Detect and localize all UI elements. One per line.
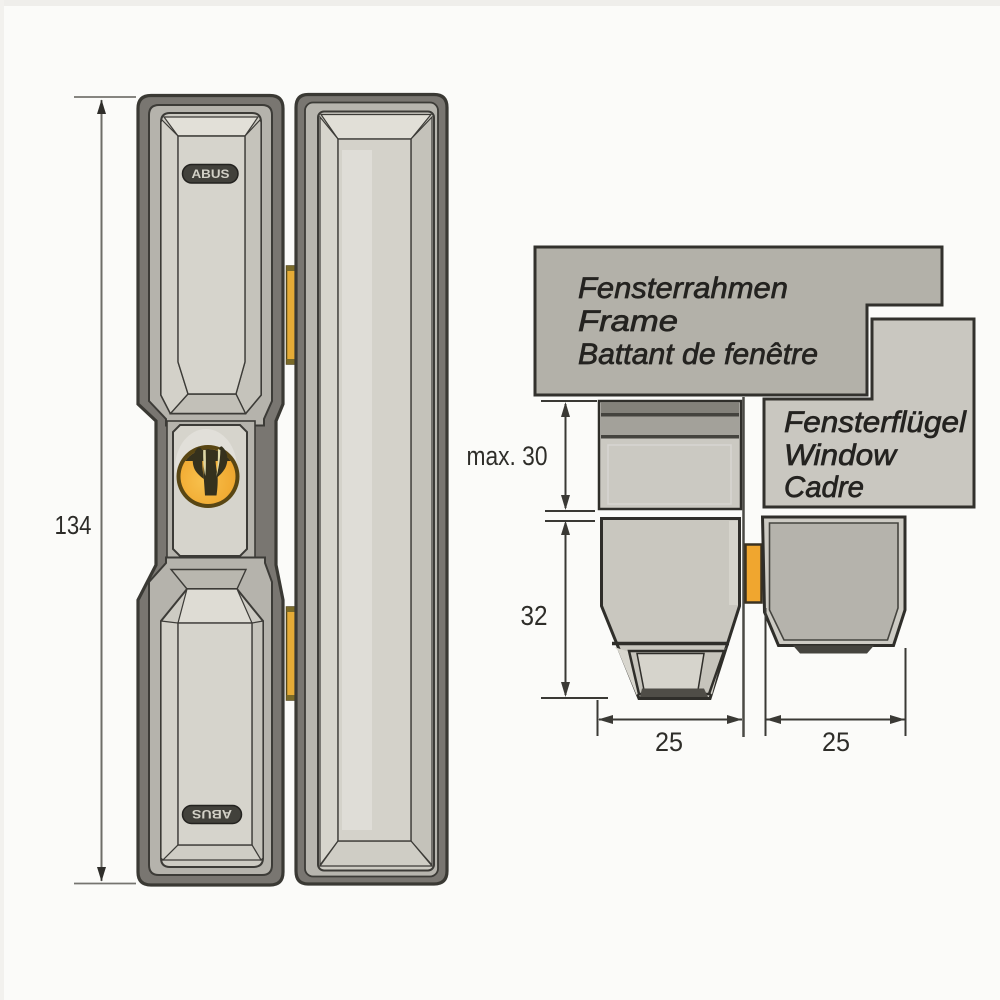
svg-text:25: 25 — [822, 727, 850, 757]
svg-text:134: 134 — [55, 510, 92, 540]
svg-text:Battant de fenêtre: Battant de fenêtre — [578, 338, 818, 371]
svg-text:Frame: Frame — [578, 305, 678, 338]
svg-text:Cadre: Cadre — [784, 471, 864, 504]
svg-text:25: 25 — [655, 727, 683, 757]
svg-text:ABUS: ABUS — [192, 167, 230, 181]
svg-text:32: 32 — [521, 600, 548, 631]
svg-text:ABUS: ABUS — [192, 807, 232, 821]
svg-text:Window: Window — [784, 439, 898, 472]
svg-text:Fensterflügel: Fensterflügel — [784, 406, 967, 439]
svg-text:Fensterrahmen: Fensterrahmen — [578, 272, 788, 305]
svg-text:max. 30: max. 30 — [467, 441, 548, 471]
